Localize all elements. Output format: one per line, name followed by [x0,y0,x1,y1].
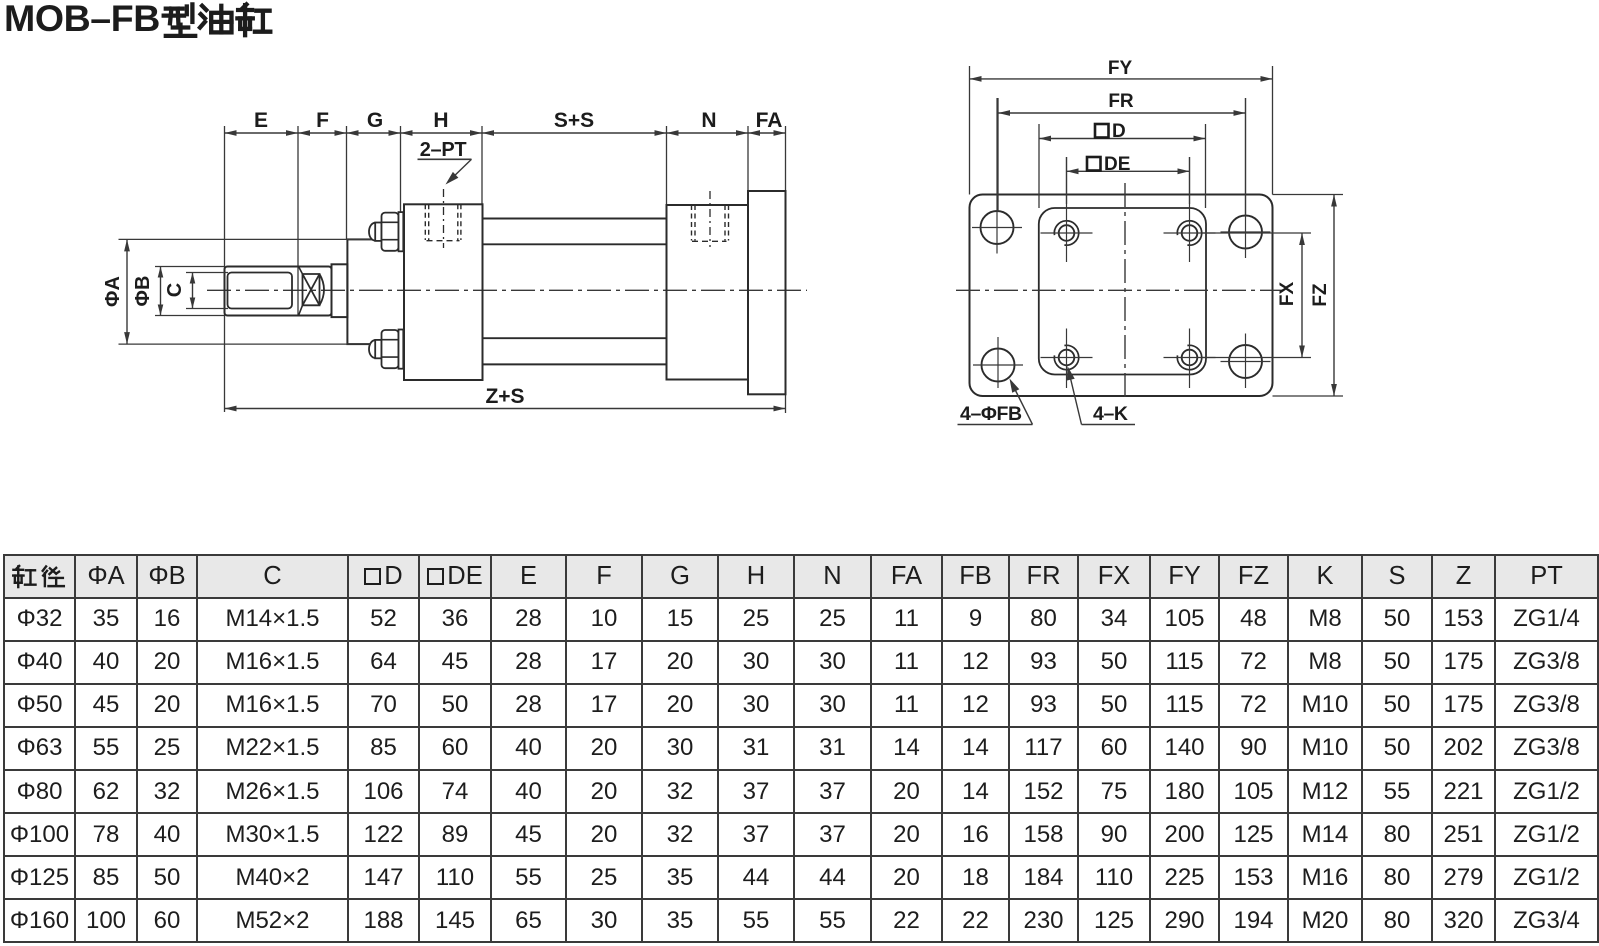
svg-text:4–ΦFB: 4–ΦFB [960,403,1022,425]
svg-text:FX: FX [1277,282,1298,307]
svg-text:FR: FR [1108,91,1134,112]
svg-text:FZ: FZ [1310,283,1331,307]
svg-text:ΦA: ΦA [102,276,124,307]
svg-text:F: F [316,109,329,132]
svg-text:4–K: 4–K [1093,403,1128,425]
svg-text:H: H [433,109,448,132]
svg-text:G: G [367,109,383,132]
svg-text:2–PT: 2–PT [420,139,467,161]
svg-text:E: E [254,109,268,132]
svg-text:Z+S: Z+S [485,385,524,408]
svg-text:MOB–FB: MOB–FB [4,0,160,39]
svg-text:FA: FA [756,109,783,132]
svg-text:N: N [701,109,716,132]
svg-text:D: D [1112,121,1126,142]
svg-text:ΦB: ΦB [132,276,154,307]
svg-text:FY: FY [1108,58,1133,79]
svg-text:C: C [164,283,186,297]
svg-text:DE: DE [1104,154,1130,175]
svg-text:S+S: S+S [554,109,594,132]
